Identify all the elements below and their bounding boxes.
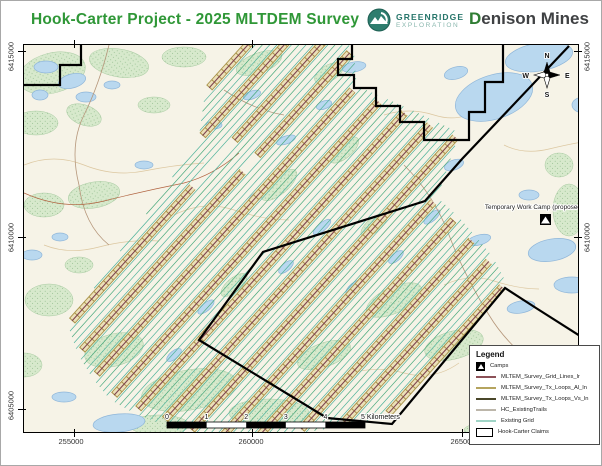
camp-swatch-icon: [476, 362, 485, 371]
bottom-tick-255000: [74, 429, 75, 437]
x-axis-label-255000: 255000: [53, 437, 89, 446]
legend-item-grid-lines: MLTEM_Survey_Grid_Lines_lr: [476, 373, 594, 381]
existing-grid-swatch: [476, 420, 496, 422]
compass-s-label: S: [545, 92, 550, 99]
legend-item-camps: Camps: [476, 362, 594, 370]
y-axis-left-6410000: 6410000: [7, 216, 16, 260]
top-tick-260000: [252, 40, 253, 48]
page-title: Hook-Carter Project - 2025 MLTDEM Survey: [31, 11, 359, 29]
denison-logo: Denison Mines: [469, 9, 589, 29]
left-tick-6410000: [18, 237, 26, 238]
legend-item-claims: Hook-Carter Claims: [476, 428, 594, 436]
scale-tick-2: 2: [244, 414, 248, 421]
bottom-tick-260000: [252, 429, 253, 437]
legend: Legend Camps MLTEM_Survey_Grid_Lines_lr …: [469, 345, 600, 445]
right-tick-6415000: [574, 51, 582, 52]
y-axis-left-6405000: 6405000: [7, 384, 16, 428]
top-tick-255000: [74, 40, 75, 48]
compass-e-label: E: [565, 73, 570, 80]
compass-w-label: W: [522, 73, 529, 80]
map-sheet: Hook-Carter Project - 2025 MLTDEM Survey…: [0, 0, 602, 466]
greenridge-logo: GREENRIDGE EXPLORATION: [367, 8, 464, 32]
y-axis-left-6415000: 6415000: [7, 35, 16, 79]
left-tick-6415000: [18, 51, 26, 52]
y-axis-right-6410000: 6410000: [583, 216, 592, 260]
scale-tick-0: 0: [165, 414, 169, 421]
denison-name: Denison Mines: [469, 9, 589, 29]
claims-swatch: [476, 428, 493, 437]
greenridge-name: GREENRIDGE: [396, 12, 464, 22]
bottom-tick-265000: [462, 429, 463, 437]
scale-tick-3: 3: [284, 414, 288, 421]
legend-item-existing-grid: Existing Grid: [476, 417, 594, 425]
legend-item-tx-loops-vs: MLTEM_Survey_Tx_Loops_Vs_ln: [476, 395, 594, 403]
right-tick-6410000: [574, 237, 582, 238]
greenridge-subtitle: EXPLORATION: [396, 22, 464, 29]
tx-loops-al-swatch: [476, 387, 496, 389]
left-tick-6405000: [18, 409, 26, 410]
greenridge-logo-icon: [367, 8, 391, 32]
scale-tick-1: 1: [205, 414, 209, 421]
tx-loops-vs-swatch: [476, 398, 496, 400]
camp-label: Temporary Work Camp (proposed): [485, 204, 578, 211]
x-axis-label-260000: 260000: [233, 437, 269, 446]
y-axis-right-6415000: 6415000: [583, 35, 592, 79]
legend-title: Legend: [476, 350, 594, 359]
legend-item-tx-loops-al: MLTEM_Survey_Tx_Loops_Al_ln: [476, 384, 594, 392]
legend-item-trails: HC_ExistingTrails: [476, 406, 594, 414]
grid-lines-swatch: [476, 376, 496, 378]
scale-unit-label: 5 Kilometers: [361, 414, 400, 421]
scale-tick-4: 4: [323, 414, 327, 421]
trails-swatch: [476, 409, 496, 411]
camp-marker: [540, 214, 551, 225]
compass-n-label: N: [544, 53, 549, 60]
